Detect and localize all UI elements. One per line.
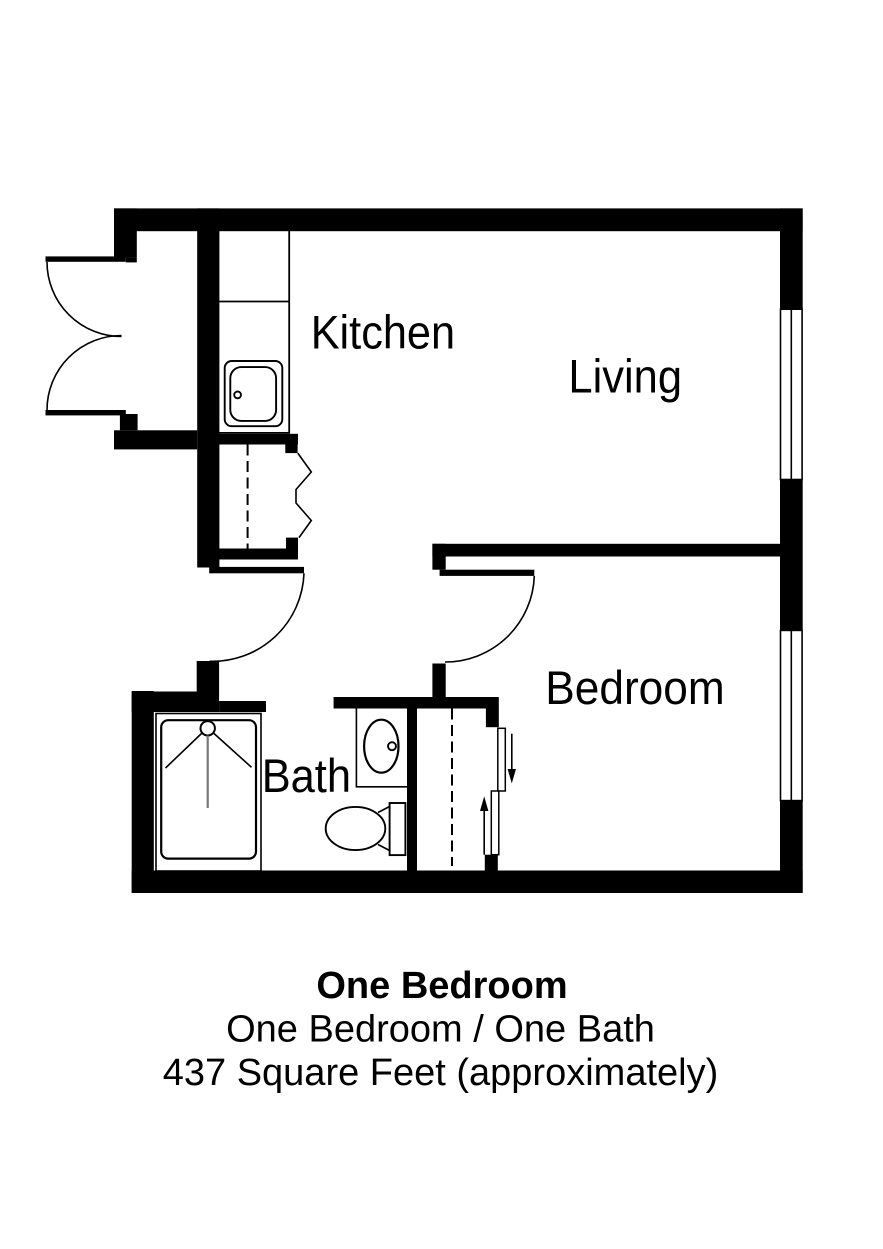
svg-text:Kitchen: Kitchen [311, 305, 455, 358]
svg-text:437 Square Feet (approximately: 437 Square Feet (approximately) [163, 1052, 719, 1094]
svg-text:Bath: Bath [262, 749, 351, 802]
svg-text:One Bedroom / One Bath: One Bedroom / One Bath [226, 1009, 655, 1051]
svg-text:One Bedroom: One Bedroom [316, 965, 567, 1007]
svg-text:Bedroom: Bedroom [545, 661, 724, 714]
svg-text:Living: Living [568, 350, 682, 403]
